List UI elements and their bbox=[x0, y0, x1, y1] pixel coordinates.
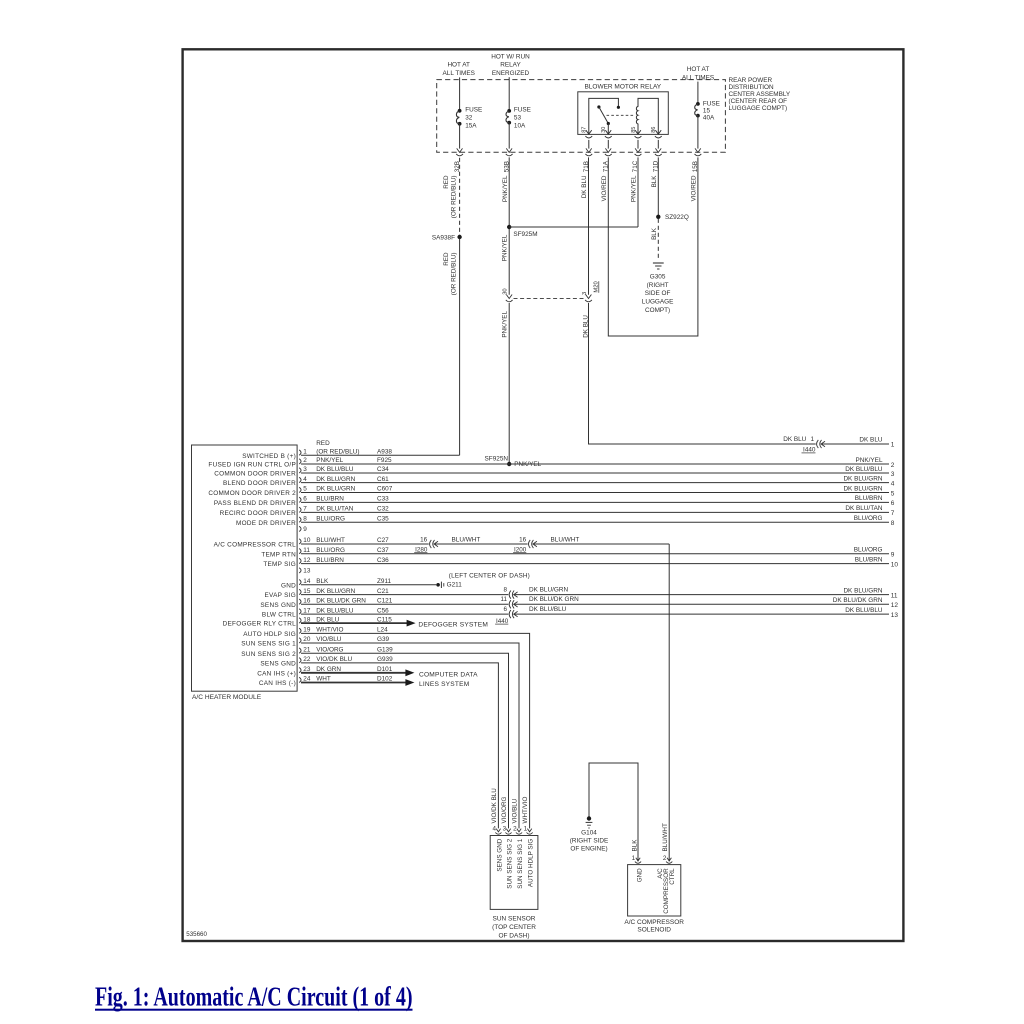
svg-text:VIO/RED: VIO/RED bbox=[601, 175, 608, 201]
svg-text:C34: C34 bbox=[377, 466, 389, 473]
svg-text:DK BLU: DK BLU bbox=[581, 175, 588, 198]
svg-text:PNK/YEL: PNK/YEL bbox=[502, 175, 509, 202]
svg-text:20: 20 bbox=[303, 636, 311, 643]
svg-text:SZ922Q: SZ922Q bbox=[665, 214, 689, 221]
svg-text:COMMON DOOR DRIVER: COMMON DOOR DRIVER bbox=[214, 471, 296, 478]
svg-text:CAN IHS (-): CAN IHS (-) bbox=[259, 680, 296, 687]
svg-text:G939: G939 bbox=[377, 656, 393, 663]
svg-text:(TOP CENTER: (TOP CENTER bbox=[492, 924, 536, 931]
svg-text:DK BLU/TAN: DK BLU/TAN bbox=[845, 505, 883, 512]
svg-text:DEFOGGER RLY CTRL: DEFOGGER RLY CTRL bbox=[223, 621, 297, 628]
svg-text:C37: C37 bbox=[377, 547, 389, 554]
svg-text:PNK/YEL: PNK/YEL bbox=[502, 311, 509, 338]
svg-text:4: 4 bbox=[891, 480, 895, 487]
svg-text:DK BLU/DK GRN: DK BLU/DK GRN bbox=[529, 596, 579, 603]
svg-text:FUSE: FUSE bbox=[465, 106, 482, 113]
svg-text:12: 12 bbox=[303, 557, 311, 564]
svg-text:FUSED IGN RUN CTRL O/P: FUSED IGN RUN CTRL O/P bbox=[208, 462, 296, 469]
svg-text:G39: G39 bbox=[377, 636, 390, 643]
svg-text:C21: C21 bbox=[377, 588, 389, 595]
svg-text:13: 13 bbox=[303, 568, 311, 575]
svg-text:DISTRIBUTION: DISTRIBUTION bbox=[729, 84, 774, 91]
svg-text:BLU/WHT: BLU/WHT bbox=[452, 536, 481, 543]
svg-text:DK BLU/GRN: DK BLU/GRN bbox=[529, 587, 568, 594]
svg-text:HOT AT: HOT AT bbox=[687, 66, 710, 73]
svg-text:VIO/BLU: VIO/BLU bbox=[316, 636, 342, 643]
svg-text:SENS GND: SENS GND bbox=[260, 602, 296, 609]
svg-text:LUGGAGE COMPT): LUGGAGE COMPT) bbox=[729, 105, 788, 112]
svg-text:(OR RED/BLU): (OR RED/BLU) bbox=[316, 448, 359, 455]
svg-text:SWITCHED B (+): SWITCHED B (+) bbox=[242, 453, 296, 460]
svg-text:RED: RED bbox=[443, 175, 450, 189]
svg-text:16: 16 bbox=[519, 536, 527, 543]
svg-text:DEFOGGER SYSTEM: DEFOGGER SYSTEM bbox=[418, 622, 488, 629]
svg-text:COMPT): COMPT) bbox=[645, 307, 670, 314]
svg-text:1: 1 bbox=[524, 826, 528, 833]
svg-text:535660: 535660 bbox=[186, 931, 207, 938]
svg-text:10: 10 bbox=[303, 537, 311, 544]
svg-text:53: 53 bbox=[514, 115, 522, 122]
svg-text:ENERGIZED: ENERGIZED bbox=[492, 70, 530, 77]
svg-text:DK BLU: DK BLU bbox=[859, 436, 882, 443]
svg-text:5: 5 bbox=[303, 486, 307, 493]
svg-text:SENS GND: SENS GND bbox=[497, 838, 504, 871]
svg-text:A/C COMPRESSOR CTRL: A/C COMPRESSOR CTRL bbox=[214, 542, 297, 549]
svg-text:3: 3 bbox=[303, 466, 307, 473]
svg-text:DK BLU/BLU: DK BLU/BLU bbox=[845, 466, 883, 473]
svg-text:MODE DR DRIVER: MODE DR DRIVER bbox=[236, 520, 296, 527]
svg-text:SF925N: SF925N bbox=[485, 455, 509, 462]
svg-text:SUN SENS SIG 2: SUN SENS SIG 2 bbox=[241, 651, 296, 658]
svg-text:2: 2 bbox=[513, 826, 517, 833]
svg-text:SENS GND: SENS GND bbox=[260, 661, 296, 668]
svg-text:PNK/YEL: PNK/YEL bbox=[316, 457, 343, 464]
svg-text:L24: L24 bbox=[377, 627, 388, 634]
svg-text:C607: C607 bbox=[377, 486, 393, 493]
svg-text:SUN SENS SIG 1: SUN SENS SIG 1 bbox=[517, 838, 524, 889]
svg-text:BLU/ORG: BLU/ORG bbox=[854, 547, 883, 554]
svg-text:Z911: Z911 bbox=[377, 578, 392, 585]
svg-text:32: 32 bbox=[465, 114, 473, 121]
svg-text:BLU/ORG: BLU/ORG bbox=[316, 547, 345, 554]
svg-text:WHT/VIO: WHT/VIO bbox=[316, 627, 343, 634]
svg-text:COMPUTER DATA: COMPUTER DATA bbox=[419, 671, 478, 678]
svg-text:15: 15 bbox=[303, 588, 311, 595]
svg-text:REAR POWER: REAR POWER bbox=[729, 77, 773, 84]
svg-text:DK BLU/GRN: DK BLU/GRN bbox=[843, 475, 882, 482]
svg-text:7: 7 bbox=[303, 506, 307, 513]
svg-text:BLK: BLK bbox=[651, 227, 658, 240]
svg-text:DK BLU/GRN: DK BLU/GRN bbox=[316, 476, 355, 483]
svg-text:21: 21 bbox=[303, 646, 311, 653]
svg-text:VIO/RED: VIO/RED bbox=[691, 175, 698, 201]
svg-text:DK BLU/BLU: DK BLU/BLU bbox=[316, 607, 354, 614]
svg-text:DK BLU/GRN: DK BLU/GRN bbox=[316, 486, 355, 493]
svg-text:VIO/ORG: VIO/ORG bbox=[316, 646, 343, 653]
svg-text:DK BLU/BLU: DK BLU/BLU bbox=[316, 466, 354, 473]
svg-text:1: 1 bbox=[891, 442, 895, 449]
svg-text:SOLENOID: SOLENOID bbox=[637, 926, 671, 933]
svg-text:2: 2 bbox=[663, 855, 667, 862]
svg-text:C35: C35 bbox=[377, 516, 389, 523]
svg-text:(OR RED/BLU): (OR RED/BLU) bbox=[450, 176, 457, 219]
svg-text:GND: GND bbox=[637, 868, 644, 882]
svg-text:C33: C33 bbox=[377, 496, 389, 503]
svg-text:CTRL: CTRL bbox=[669, 868, 676, 885]
svg-text:22: 22 bbox=[303, 656, 311, 663]
svg-text:8: 8 bbox=[303, 516, 307, 523]
svg-text:G139: G139 bbox=[377, 646, 393, 653]
svg-text:9: 9 bbox=[891, 552, 895, 559]
svg-text:DK BLU/GRN: DK BLU/GRN bbox=[843, 587, 882, 594]
svg-text:30: 30 bbox=[502, 288, 508, 294]
svg-text:BLU/WHT: BLU/WHT bbox=[316, 537, 345, 544]
svg-text:VIO/DK BLU: VIO/DK BLU bbox=[491, 788, 498, 824]
svg-text:C121: C121 bbox=[377, 598, 393, 605]
svg-text:8: 8 bbox=[503, 587, 507, 594]
svg-text:GND: GND bbox=[281, 582, 296, 589]
svg-text:16: 16 bbox=[420, 536, 428, 543]
svg-text:AUTO HDLP SIG: AUTO HDLP SIG bbox=[243, 631, 296, 638]
svg-text:DK BLU/GRN: DK BLU/GRN bbox=[843, 485, 882, 492]
svg-text:12: 12 bbox=[891, 602, 899, 609]
svg-text:40A: 40A bbox=[703, 115, 715, 122]
svg-text:11: 11 bbox=[500, 596, 507, 603]
svg-text:SF925M: SF925M bbox=[513, 231, 537, 238]
svg-text:A/C COMPRESSOR: A/C COMPRESSOR bbox=[624, 919, 684, 926]
svg-text:RED: RED bbox=[443, 252, 450, 266]
svg-text:FUSE: FUSE bbox=[514, 107, 531, 114]
svg-text:G104: G104 bbox=[581, 829, 597, 836]
svg-text:9: 9 bbox=[303, 526, 307, 533]
svg-text:8: 8 bbox=[891, 520, 895, 527]
svg-text:C36: C36 bbox=[377, 557, 389, 564]
svg-text:BLU/WHT: BLU/WHT bbox=[662, 823, 669, 851]
svg-text:SA938F: SA938F bbox=[432, 234, 455, 241]
svg-text:3: 3 bbox=[503, 826, 507, 833]
svg-text:19: 19 bbox=[303, 627, 311, 634]
svg-text:1: 1 bbox=[810, 436, 814, 443]
svg-text:RECIRC DOOR DRIVER: RECIRC DOOR DRIVER bbox=[220, 510, 297, 517]
svg-text:PNK/YEL: PNK/YEL bbox=[631, 175, 638, 202]
svg-text:G305: G305 bbox=[650, 273, 666, 280]
svg-text:6: 6 bbox=[503, 606, 507, 613]
svg-text:BLK: BLK bbox=[316, 578, 329, 585]
svg-text:PNK/YEL: PNK/YEL bbox=[856, 457, 883, 464]
svg-text:1: 1 bbox=[632, 855, 636, 862]
svg-text:A/C HEATER MODULE: A/C HEATER MODULE bbox=[192, 694, 262, 701]
svg-text:AUTO HDLP SIG: AUTO HDLP SIG bbox=[528, 839, 535, 888]
svg-text:G211: G211 bbox=[447, 582, 463, 589]
svg-text:5: 5 bbox=[891, 490, 895, 497]
svg-text:(RIGHT SIDE: (RIGHT SIDE bbox=[570, 837, 609, 844]
svg-text:CAN IHS (+): CAN IHS (+) bbox=[257, 670, 296, 677]
svg-text:BLOWER MOTOR RELAY: BLOWER MOTOR RELAY bbox=[584, 84, 661, 91]
svg-text:WHT/VIO: WHT/VIO bbox=[522, 796, 529, 823]
svg-text:PNK/YEL: PNK/YEL bbox=[502, 234, 509, 261]
svg-text:HOT W/ RUN: HOT W/ RUN bbox=[491, 53, 530, 60]
svg-text:C61: C61 bbox=[377, 476, 389, 483]
svg-text:15: 15 bbox=[703, 108, 711, 115]
svg-text:BLU/BRN: BLU/BRN bbox=[855, 556, 883, 563]
svg-text:6: 6 bbox=[891, 500, 895, 507]
svg-text:OF ENGINE): OF ENGINE) bbox=[570, 845, 607, 852]
svg-text:BLU/BRN: BLU/BRN bbox=[316, 496, 344, 503]
svg-text:4: 4 bbox=[492, 826, 496, 833]
svg-text:TEMP RTN: TEMP RTN bbox=[261, 551, 296, 558]
svg-text:(OR RED/BLU): (OR RED/BLU) bbox=[450, 253, 457, 296]
svg-text:11: 11 bbox=[303, 547, 310, 554]
svg-text:BLU/ORG: BLU/ORG bbox=[316, 516, 345, 523]
svg-text:BLW CTRL: BLW CTRL bbox=[262, 612, 296, 619]
svg-text:15A: 15A bbox=[465, 123, 477, 130]
svg-text:2: 2 bbox=[891, 462, 895, 469]
svg-text:DK BLU: DK BLU bbox=[783, 436, 806, 443]
svg-text:C32: C32 bbox=[377, 506, 389, 513]
svg-text:17: 17 bbox=[303, 607, 311, 614]
svg-text:16: 16 bbox=[303, 598, 311, 605]
svg-text:(LEFT CENTER OF DASH): (LEFT CENTER OF DASH) bbox=[449, 573, 530, 580]
svg-text:14: 14 bbox=[303, 578, 311, 585]
svg-text:1: 1 bbox=[303, 448, 307, 455]
svg-text:3: 3 bbox=[582, 292, 588, 295]
svg-text:DK BLU/BLU: DK BLU/BLU bbox=[529, 606, 567, 613]
svg-text:SUN SENSOR: SUN SENSOR bbox=[493, 915, 536, 922]
svg-text:VIO/ORG: VIO/ORG bbox=[501, 796, 508, 823]
svg-text:7: 7 bbox=[891, 510, 895, 517]
svg-text:11: 11 bbox=[891, 592, 898, 599]
svg-text:ALL TIMES: ALL TIMES bbox=[682, 75, 714, 82]
svg-text:RELAY: RELAY bbox=[500, 62, 521, 69]
svg-text:COMMON DOOR DRIVER 2: COMMON DOOR DRIVER 2 bbox=[208, 490, 296, 497]
svg-text:DK BLU/BLU: DK BLU/BLU bbox=[845, 607, 883, 614]
svg-text:ALL TIMES: ALL TIMES bbox=[443, 70, 475, 77]
svg-text:6: 6 bbox=[303, 496, 307, 503]
svg-text:BLEND DOOR DRIVER: BLEND DOOR DRIVER bbox=[223, 480, 296, 487]
svg-text:TEMP SIG: TEMP SIG bbox=[263, 561, 296, 568]
svg-text:BLU/ORG: BLU/ORG bbox=[854, 515, 883, 522]
svg-text:LUGGAGE: LUGGAGE bbox=[642, 299, 674, 306]
svg-text:SIDE OF: SIDE OF bbox=[645, 290, 671, 297]
svg-text:RED: RED bbox=[316, 440, 330, 447]
svg-text:CENTER ASSEMBLY: CENTER ASSEMBLY bbox=[729, 91, 791, 98]
svg-text:Fig. 1: Automatic A/C Circuit: Fig. 1: Automatic A/C Circuit (1 of 4) bbox=[95, 981, 413, 1012]
svg-text:HOT AT: HOT AT bbox=[447, 62, 470, 69]
svg-text:BLK: BLK bbox=[651, 175, 658, 188]
svg-text:SUN SENS SIG 2: SUN SENS SIG 2 bbox=[507, 838, 514, 889]
svg-text:BLU/BRN: BLU/BRN bbox=[316, 557, 344, 564]
svg-text:DK BLU/TAN: DK BLU/TAN bbox=[316, 506, 354, 513]
svg-text:C27: C27 bbox=[377, 537, 389, 544]
svg-text:DK BLU/DK GRN: DK BLU/DK GRN bbox=[316, 598, 366, 605]
svg-text:LINES SYSTEM: LINES SYSTEM bbox=[419, 681, 469, 688]
svg-text:OF DASH): OF DASH) bbox=[498, 932, 529, 939]
svg-text:A938: A938 bbox=[377, 448, 392, 455]
svg-text:3: 3 bbox=[891, 471, 895, 478]
svg-text:10A: 10A bbox=[514, 122, 526, 129]
svg-text:PASS BLEND DR DRIVER: PASS BLEND DR DRIVER bbox=[214, 500, 296, 507]
svg-text:F925: F925 bbox=[377, 457, 392, 464]
svg-text:10: 10 bbox=[891, 561, 899, 568]
svg-text:4: 4 bbox=[303, 476, 307, 483]
svg-text:BLU/BRN: BLU/BRN bbox=[855, 495, 883, 502]
svg-text:2: 2 bbox=[303, 457, 307, 464]
svg-text:SUN SENS SIG 1: SUN SENS SIG 1 bbox=[241, 641, 296, 648]
svg-text:BLU/WHT: BLU/WHT bbox=[551, 536, 580, 543]
svg-text:VIO/BLU: VIO/BLU bbox=[511, 798, 518, 823]
svg-text:EVAP SIG: EVAP SIG bbox=[265, 592, 296, 599]
svg-text:(CENTER REAR OF: (CENTER REAR OF bbox=[729, 98, 788, 105]
svg-text:13: 13 bbox=[891, 612, 899, 619]
svg-text:BLK: BLK bbox=[631, 839, 638, 852]
svg-text:(RIGHT: (RIGHT bbox=[647, 282, 669, 289]
svg-text:DK BLU/DK GRN: DK BLU/DK GRN bbox=[833, 597, 883, 604]
svg-text:VIO/DK BLU: VIO/DK BLU bbox=[316, 656, 352, 663]
svg-text:DK BLU/GRN: DK BLU/GRN bbox=[316, 588, 355, 595]
svg-text:C56: C56 bbox=[377, 607, 389, 614]
